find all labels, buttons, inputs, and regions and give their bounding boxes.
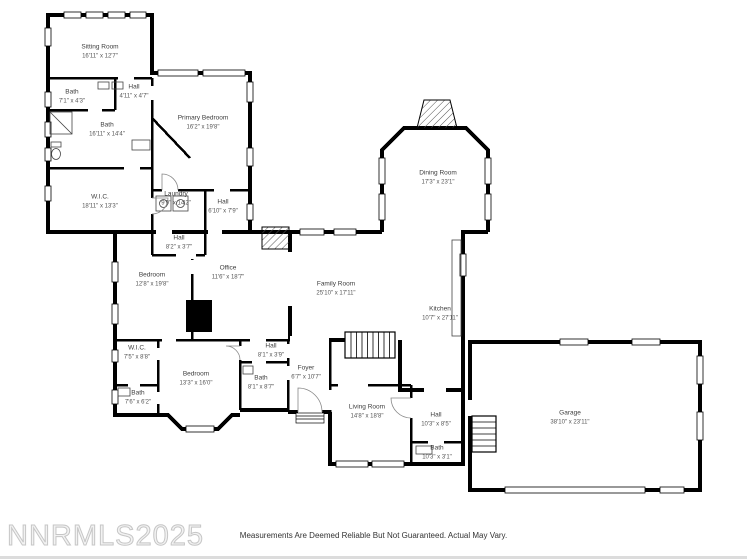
room-name: Bath [89,122,125,131]
room-name: Hall [166,235,192,244]
room-label-bath-5: Bath10'3" x 3'1" [422,445,452,462]
room-dimensions: 13'3" x 16'0" [180,379,213,387]
room-name: Living Room [349,404,385,413]
room-label-bedroom-1: Bedroom12'8" x 19'8" [136,272,169,289]
room-label-hall-3: Hall8'2" x 3'7" [166,235,192,252]
room-name: Kitchen [422,306,458,315]
room-dimensions: 6'10" x 7'9" [208,207,238,215]
room-dimensions: 7'1" x 4'3" [59,97,85,105]
room-name: Office [212,265,244,274]
stairs-main [345,332,395,358]
room-dimensions: 8'1" x 3'9" [258,351,284,359]
stairs-garage [472,416,496,452]
floorplan-svg [0,0,747,560]
room-name: Dining Room [419,170,457,179]
disclaimer: Measurements Are Deemed Reliable But Not… [0,531,747,540]
room-dimensions: 16'11" x 12'7" [81,52,118,60]
room-name: Family Room [316,281,355,290]
room-dimensions: 4'11" x 4'7" [119,92,148,100]
room-label-hall-1: Hall4'11" x 4'7" [119,84,148,101]
room-dimensions: 8'1" x 8'7" [248,383,274,391]
front-steps [296,413,324,423]
room-dimensions: 12'8" x 19'8" [136,280,169,288]
room-label-hall-2: Hall6'10" x 7'9" [208,199,238,216]
room-name: Bath [125,390,151,399]
room-name: Foyer [291,365,321,374]
room-label-hall-5: Hall10'3" x 8'5" [421,412,451,429]
room-name: Bath [59,89,85,98]
room-dimensions: 38'10" x 23'11" [550,418,589,426]
deck-hatch-family [262,227,289,249]
room-label-laundry: Laundry9'9" x 14'2" [161,191,191,208]
room-label-bath-3: Bath7'6" x 6'2" [125,390,151,407]
room-dimensions: 16'11" x 14'4" [89,130,125,138]
room-dimensions: 6'7" x 10'7" [291,373,321,381]
room-label-primary-bedroom: Primary Bedroom16'2" x 19'8" [178,115,229,132]
room-label-foyer: Foyer6'7" x 10'7" [291,365,321,382]
fireplace [186,300,212,332]
floorplan-canvas: Sitting Room16'11" x 12'7"Bath7'1" x 4'3… [0,0,747,560]
room-label-bath-2: Bath16'11" x 14'4" [89,122,125,139]
room-dimensions: 10'3" x 8'5" [421,420,451,428]
room-name: Bath [248,375,274,384]
room-dimensions: 7'6" x 6'2" [125,398,151,406]
room-name: W.I.C. [124,345,150,354]
room-dimensions: 9'9" x 14'2" [161,199,191,207]
room-name: Hall [208,199,238,208]
room-label-wic-1: W.I.C.18'11" x 13'3" [82,194,118,211]
room-label-hall-4: Hall8'1" x 3'9" [258,343,284,360]
room-name: W.I.C. [82,194,118,203]
room-dimensions: 16'2" x 19'8" [178,123,229,131]
room-label-bath-1: Bath7'1" x 4'3" [59,89,85,106]
room-dimensions: 25'10" x 17'11" [316,289,355,297]
room-label-dining-room: Dining Room17'3" x 23'1" [419,170,457,187]
room-name: Garage [550,410,589,419]
room-label-wic-2: W.I.C.7'5" x 8'8" [124,345,150,362]
bottom-divider [0,556,747,559]
room-name: Sitting Room [81,44,118,53]
room-name: Hall [119,84,148,93]
room-name: Bath [422,445,452,454]
room-name: Bedroom [180,371,213,380]
room-dimensions: 7'5" x 8'8" [124,353,150,361]
room-dimensions: 14'8" x 18'8" [349,412,385,420]
room-label-office: Office11'6" x 18'7" [212,265,244,282]
room-dimensions: 11'6" x 18'7" [212,273,244,281]
room-label-garage: Garage38'10" x 23'11" [550,410,589,427]
room-name: Hall [421,412,451,421]
room-label-family-room: Family Room25'10" x 17'11" [316,281,355,298]
room-dimensions: 10'7" x 27'11" [422,314,458,322]
room-name: Laundry [161,191,191,200]
room-dimensions: 10'3" x 3'1" [422,453,452,461]
deck-hatch-dining [417,100,457,128]
room-dimensions: 17'3" x 23'1" [419,178,457,186]
room-name: Hall [258,343,284,352]
room-dimensions: 8'2" x 3'7" [166,243,192,251]
room-name: Bedroom [136,272,169,281]
room-label-kitchen: Kitchen10'7" x 27'11" [422,306,458,323]
room-label-living-room: Living Room14'8" x 18'8" [349,404,385,421]
room-name: Primary Bedroom [178,115,229,124]
room-label-bedroom-2: Bedroom13'3" x 16'0" [180,371,213,388]
room-dimensions: 18'11" x 13'3" [82,202,118,210]
room-label-sitting-room: Sitting Room16'11" x 12'7" [81,44,118,61]
room-label-bath-4: Bath8'1" x 8'7" [248,375,274,392]
